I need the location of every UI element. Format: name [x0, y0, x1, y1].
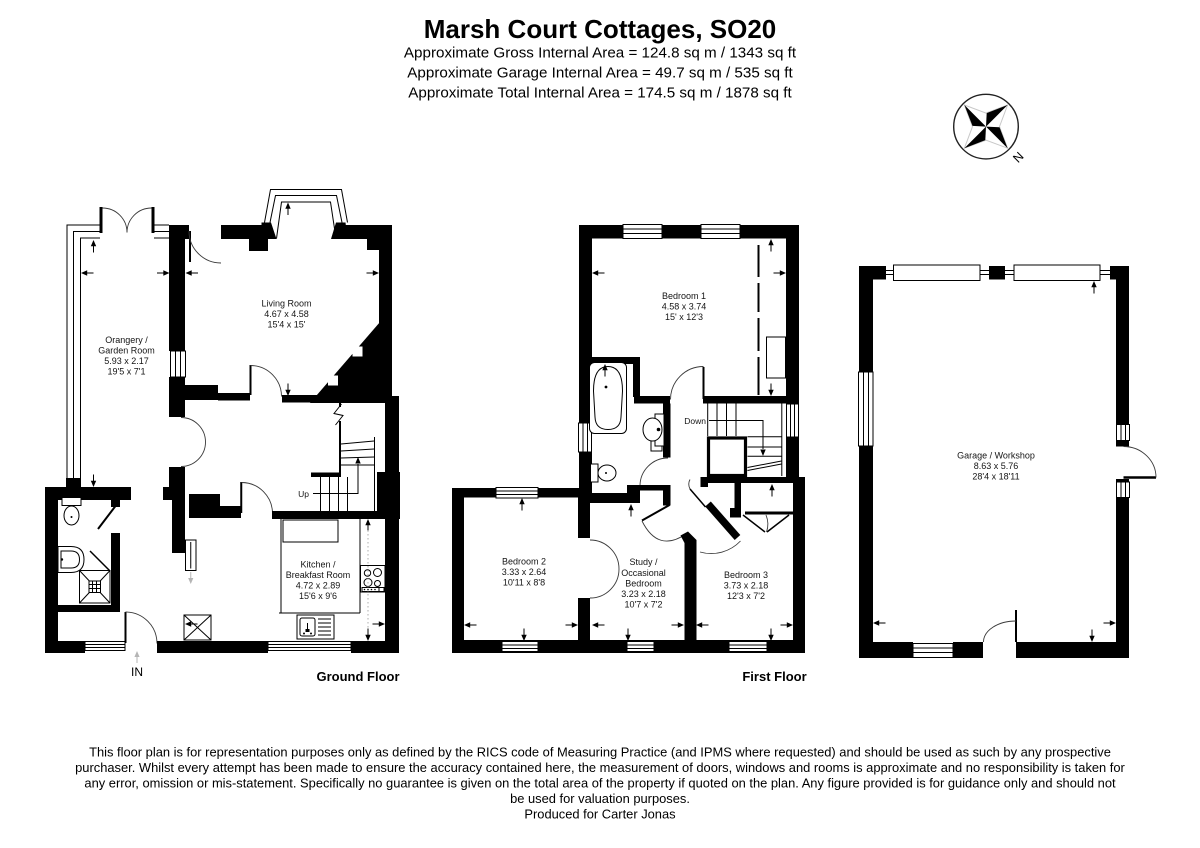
svg-text:Living Room: Living Room	[261, 299, 311, 309]
svg-text:15' x 12'3: 15' x 12'3	[665, 312, 703, 322]
svg-text:12'3 x 7'2: 12'3 x 7'2	[727, 591, 765, 601]
svg-text:3.23 x 2.18: 3.23 x 2.18	[621, 589, 666, 599]
svg-text:Bedroom: Bedroom	[625, 579, 662, 589]
svg-text:15'4 x 15': 15'4 x 15'	[268, 320, 306, 330]
svg-text:4.72 x 2.89: 4.72 x 2.89	[296, 581, 341, 591]
svg-text:10'7 x 7'2: 10'7 x 7'2	[625, 600, 663, 610]
svg-text:Orangery /: Orangery /	[105, 335, 148, 345]
svg-text:Bedroom 2: Bedroom 2	[502, 557, 546, 567]
svg-text:be used for valuation purposes: be used for valuation purposes.	[510, 791, 690, 806]
svg-text:Marsh Court Cottages, SO20: Marsh Court Cottages, SO20	[424, 14, 777, 44]
svg-text:Down: Down	[684, 416, 706, 426]
svg-text:Approximate Gross Internal Are: Approximate Gross Internal Area = 124.8 …	[404, 45, 797, 62]
svg-text:Approximate Garage Internal Ar: Approximate Garage Internal Area = 49.7 …	[407, 65, 793, 82]
svg-text:Study /: Study /	[629, 557, 658, 567]
svg-text:First Floor: First Floor	[742, 669, 806, 684]
svg-text:Bedroom 3: Bedroom 3	[724, 570, 768, 580]
svg-text:15'6 x 9'6: 15'6 x 9'6	[299, 591, 337, 601]
svg-text:19'5 x 7'1: 19'5 x 7'1	[108, 367, 146, 377]
svg-text:Breakfast Room: Breakfast Room	[286, 570, 351, 580]
svg-text:Occasional: Occasional	[621, 568, 666, 578]
svg-text:3.73 x 2.18: 3.73 x 2.18	[724, 581, 769, 591]
svg-text:4.67 x 4.58: 4.67 x 4.58	[264, 309, 309, 319]
svg-text:8.63 x 5.76: 8.63 x 5.76	[974, 461, 1019, 471]
svg-text:IN: IN	[131, 665, 143, 679]
svg-text:Approximate Total Internal Are: Approximate Total Internal Area = 174.5 …	[408, 85, 792, 102]
svg-text:10'11 x 8'8: 10'11 x 8'8	[503, 578, 545, 588]
svg-text:Kitchen /: Kitchen /	[300, 560, 336, 570]
svg-text:4.58 x 3.74: 4.58 x 3.74	[662, 302, 707, 312]
svg-text:any error, omission or mis-sta: any error, omission or mis-statement. Sp…	[84, 776, 1116, 791]
svg-text:purchaser. Whilst every attemp: purchaser. Whilst every attempt has been…	[75, 760, 1125, 775]
svg-text:Garden Room: Garden Room	[98, 346, 155, 356]
svg-text:Garage / Workshop: Garage / Workshop	[957, 451, 1035, 461]
svg-text:Produced for Carter Jonas: Produced for Carter Jonas	[524, 807, 675, 822]
svg-text:Bedroom 1: Bedroom 1	[662, 291, 706, 301]
svg-text:3.33 x 2.64: 3.33 x 2.64	[502, 567, 547, 577]
svg-text:28'4 x 18'11: 28'4 x 18'11	[972, 472, 1019, 482]
svg-text:Ground Floor: Ground Floor	[316, 669, 399, 684]
svg-text:This floor plan is for represe: This floor plan is for representation pu…	[89, 745, 1111, 760]
svg-text:Up: Up	[298, 489, 309, 499]
svg-text:5.93 x 2.17: 5.93 x 2.17	[104, 356, 149, 366]
